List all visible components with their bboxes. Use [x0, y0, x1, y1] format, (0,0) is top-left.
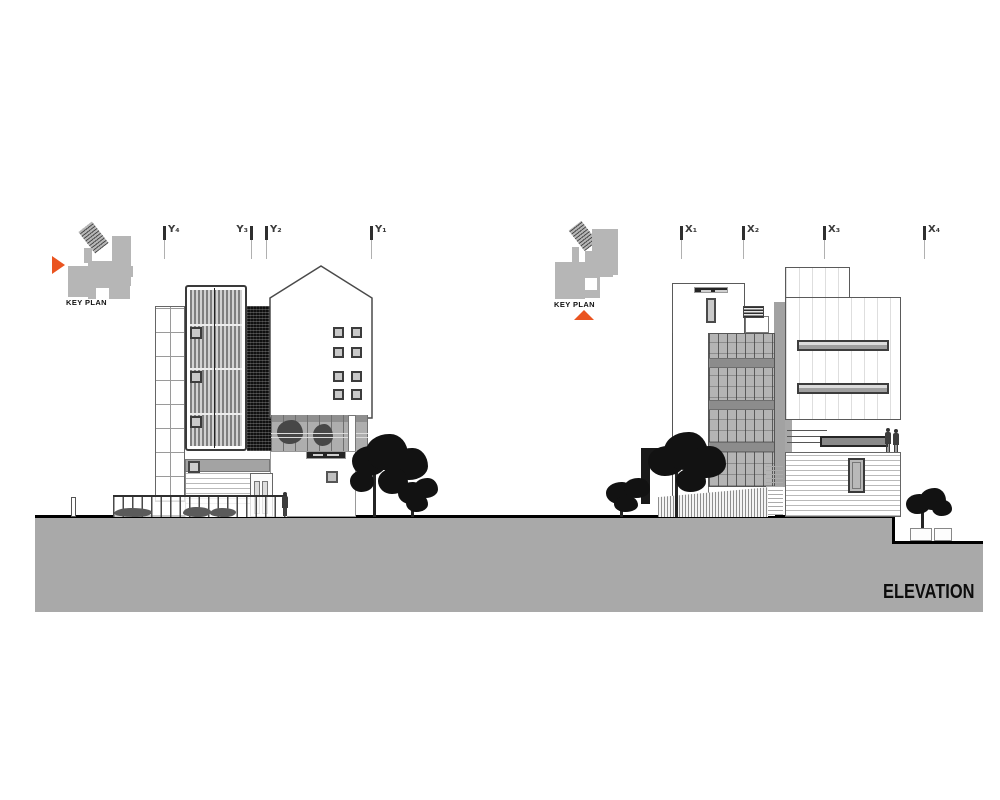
louver-joint-line [214, 288, 215, 448]
grid-marker-y4: Y₄ [163, 226, 166, 260]
marker-tick [680, 226, 683, 240]
tree-foliage [406, 494, 428, 512]
marker-tick [370, 226, 373, 240]
tree-foliage [624, 478, 650, 498]
window [351, 371, 362, 382]
window-inner-frame [852, 462, 861, 489]
grid-marker-y2: Y₂ [265, 226, 268, 260]
marker-tick [265, 226, 268, 240]
tree-foliage [350, 470, 374, 492]
window [190, 327, 202, 339]
parapet-step [745, 316, 769, 333]
marker-label: Y₂ [270, 224, 282, 235]
main-volume [785, 297, 901, 420]
siding-wall [785, 452, 901, 517]
planter-box [910, 528, 932, 541]
stair-hatch [766, 463, 783, 515]
marker-label: Y₃ [236, 224, 248, 235]
tree-foliage [676, 468, 706, 492]
planter-box [934, 528, 952, 541]
tree-foliage [932, 500, 952, 516]
marker-tick [923, 226, 926, 240]
person-body [893, 433, 899, 445]
grid-marker-x4: X₄ [923, 226, 926, 260]
person-body [282, 496, 288, 508]
grid-marker-y1: Y₁ [370, 226, 373, 260]
key-plan-notch [585, 278, 597, 290]
person-figure [281, 492, 291, 517]
bush [183, 507, 211, 517]
strip-window [797, 340, 889, 351]
bush [114, 508, 152, 517]
window [188, 461, 200, 473]
gray-pilaster [774, 302, 785, 487]
tree-behind-glass [313, 424, 333, 446]
window [351, 347, 362, 358]
entrance-sign [306, 451, 346, 459]
grid-marker-x2: X₂ [742, 226, 745, 260]
window [848, 458, 865, 493]
window [351, 389, 362, 400]
key-plan-footprint [112, 236, 131, 286]
marker-label: X₄ [928, 224, 940, 235]
person-body [885, 432, 891, 444]
spandrel-band [709, 400, 774, 410]
key-plan-footprint [555, 262, 585, 299]
floor-line [190, 368, 242, 370]
floor-line [190, 413, 242, 415]
building-sign [694, 287, 728, 293]
narrow-window [706, 298, 716, 323]
window [333, 371, 344, 382]
key-plan-footprint [122, 266, 133, 277]
view-direction-arrow-icon [574, 310, 594, 320]
marker-tick [742, 226, 745, 240]
terrace-planter [820, 436, 888, 447]
spandrel-band [709, 358, 774, 368]
person-legs [886, 444, 890, 452]
window [190, 371, 202, 383]
grid-marker-x1: X₁ [680, 226, 683, 260]
upper-volume-step [785, 267, 850, 299]
marker-label: X₂ [747, 224, 759, 235]
sheet-title: ELEVATION [883, 581, 965, 604]
key-plan-footprint [68, 266, 89, 297]
grid-marker-y3: Y₃ [250, 226, 253, 260]
site-post [71, 497, 76, 517]
marker-tick [163, 226, 166, 240]
floor-line [190, 324, 242, 326]
marker-label: X₁ [685, 224, 697, 235]
key-plan-label: KEY PLAN [554, 300, 595, 309]
window [351, 327, 362, 338]
view-direction-arrow-icon [52, 256, 65, 274]
window [190, 416, 202, 428]
marker-tick [250, 226, 253, 240]
grid-marker-x3: X₃ [823, 226, 826, 260]
window [333, 389, 344, 400]
person-figure [892, 429, 902, 452]
curtain-wall-wing [155, 306, 185, 502]
window [333, 327, 344, 338]
key-plan-footprint [572, 247, 579, 263]
key-plan-label: KEY PLAN [66, 298, 107, 307]
person-legs [283, 508, 287, 516]
key-plan-diagonal-wing [78, 222, 108, 254]
window [326, 471, 338, 483]
marker-label: Y₄ [168, 224, 180, 235]
strip-window [797, 383, 889, 394]
elevation-sheet: ELEVATION Y₄ Y₃ Y₂ Y₁ X₁ X₂ X₃ X₄ [0, 0, 1000, 800]
marker-label: Y₁ [375, 224, 387, 235]
marker-label: X₃ [828, 224, 840, 235]
tree-foliage [614, 496, 638, 512]
key-plan-left: KEY PLAN [45, 220, 145, 315]
louver-stack [743, 306, 764, 318]
marker-tick [823, 226, 826, 240]
ground-band [35, 515, 895, 612]
bush [210, 508, 236, 517]
key-plan-footprint [600, 267, 613, 277]
window [333, 347, 344, 358]
ground-step-edge [892, 515, 895, 544]
key-plan-right: KEY PLAN [548, 218, 638, 326]
tree-behind-glass [277, 420, 303, 444]
